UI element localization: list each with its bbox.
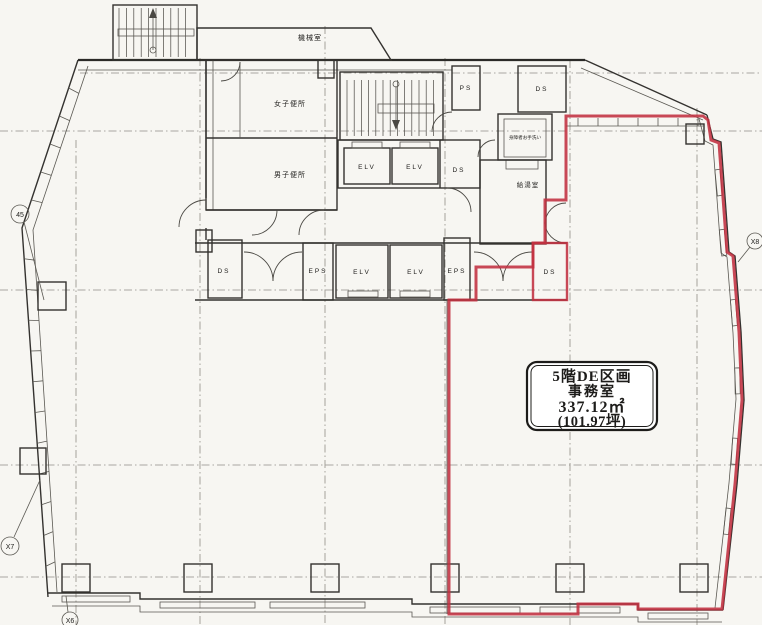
window-band-bottom xyxy=(48,593,723,622)
column xyxy=(318,60,334,78)
grid-bubble-bottom: X6 xyxy=(66,618,75,625)
detail-line xyxy=(33,381,43,382)
column xyxy=(196,230,212,252)
detail-line xyxy=(42,502,52,505)
room-label-ds-lower-right: DS xyxy=(543,269,556,276)
stair-tower xyxy=(113,5,197,60)
title-box: 5階DE区画 事務室 337.12㎡ (101.97坪) xyxy=(527,362,657,430)
room-label-elv-lower-2: ELV xyxy=(407,269,425,276)
floor-plan-svg: 機械室 女子便所 男子便所 ELV ELV ELV ELV PS DS DS D… xyxy=(0,0,762,625)
grid-bubble-bottom-left: X7 xyxy=(6,544,15,551)
grid-bubble-right: X8 xyxy=(751,239,760,246)
room-label-eps-lower-left: EPS xyxy=(308,268,327,275)
window-band-left xyxy=(22,60,88,597)
door-arcs xyxy=(179,62,566,281)
toilet-block xyxy=(206,60,337,210)
detail-line xyxy=(31,200,42,203)
room-label-ps: PS xyxy=(460,85,473,92)
detail-line xyxy=(50,144,61,148)
room-label-kitchenette: 給湯室 xyxy=(517,180,540,189)
title-line-area-tsubo: (101.97坪) xyxy=(558,413,627,430)
columns xyxy=(20,282,708,592)
grid-bubble-top-left: 45 xyxy=(16,212,24,219)
stair-center xyxy=(340,72,443,140)
title-line-section: 5階DE区画 xyxy=(552,367,631,385)
window-band-right xyxy=(686,115,744,610)
detail-line xyxy=(35,411,45,413)
detail-line xyxy=(59,116,69,121)
room-label-machine-room: 機械室 xyxy=(298,33,322,42)
room-label-elv-upper-1: ELV xyxy=(358,164,376,171)
detail-line xyxy=(46,562,55,566)
room-label-elv-upper-2: ELV xyxy=(406,164,424,171)
room-label-ds-lower-left: DS xyxy=(217,268,230,275)
detail-line xyxy=(44,532,53,536)
floor-plan-page: 機械室 女子便所 男子便所 ELV ELV ELV ELV PS DS DS D… xyxy=(0,0,762,625)
room-label-elv-lower-1: ELV xyxy=(353,269,371,276)
room-label-accessible-toilet: 身障者お手洗い xyxy=(509,134,542,141)
room-label-mens-toilet: 男子便所 xyxy=(274,170,306,179)
title-line-use: 事務室 xyxy=(568,383,616,400)
stair-arrow-head xyxy=(392,120,400,130)
detail-line xyxy=(37,441,47,443)
room-label-eps-lower-right: EPS xyxy=(447,268,466,275)
detail-line xyxy=(69,88,79,93)
room-label-ds-top-right: DS xyxy=(535,86,548,93)
room-labels: 機械室 女子便所 男子便所 ELV ELV ELV ELV PS DS DS D… xyxy=(217,33,556,276)
detail-line xyxy=(41,172,52,175)
room-label-ds-upper-mid: DS xyxy=(452,167,465,174)
room-label-womens-toilet: 女子便所 xyxy=(274,99,306,108)
kitchenette-room xyxy=(480,160,546,244)
accessible-toilet-room xyxy=(498,114,552,169)
machine-room-outline xyxy=(197,28,391,60)
